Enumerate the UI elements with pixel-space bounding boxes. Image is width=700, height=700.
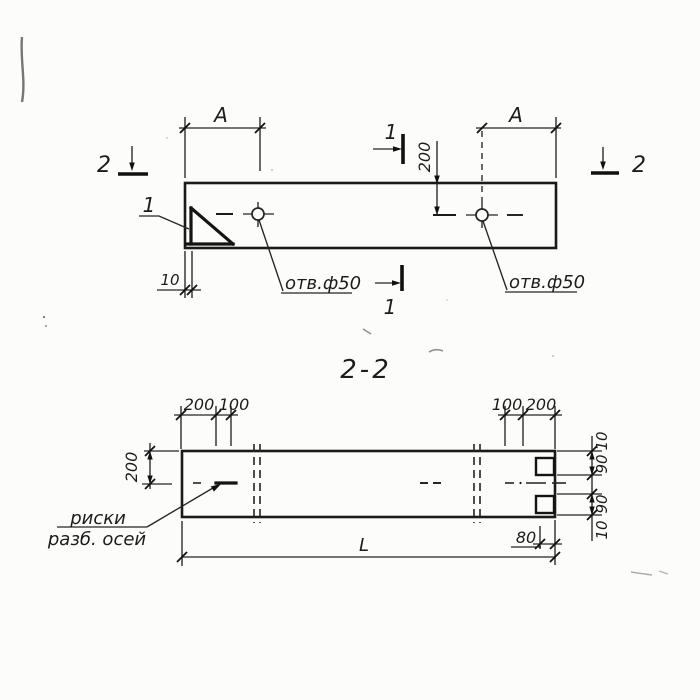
section-mark-2-right: 2: [591, 147, 646, 178]
section-mark-1-bottom: 1: [375, 265, 402, 319]
dim-200-plan-label: 200: [415, 142, 434, 173]
dim-top-right-100: 100: [492, 395, 523, 414]
axis-note-line2: разб. осей: [47, 529, 147, 550]
dim-top-left: 200 100: [174, 395, 249, 449]
dim-right-10-top: 10: [593, 431, 611, 450]
dim-right-chain: 10 90 90 10: [557, 431, 611, 541]
section-mark-1-bottom-label: 1: [384, 295, 397, 319]
dim-top-left-100: 100: [219, 395, 250, 414]
section-mark-1-top: 1: [373, 120, 403, 164]
section-title: 2-2: [340, 355, 391, 385]
dim-height-left-label: 200: [122, 452, 141, 483]
dim-a-right-label: А: [507, 103, 523, 127]
section-mark-1-top-label: 1: [385, 120, 398, 144]
dim-right-90-top: 90: [593, 454, 611, 473]
section-mark-2-left-label: 2: [97, 153, 111, 178]
dim-right-90-bottom: 90: [593, 494, 611, 513]
dim-top-left-200: 200: [184, 395, 215, 414]
dim-right-10-bottom: 10: [593, 520, 611, 539]
drawing-canvas: 1 отв.ф50 отв.ф50: [0, 0, 700, 700]
detail-mark-label: 1: [143, 193, 156, 217]
plan-view: 1 отв.ф50 отв.ф50: [97, 103, 646, 319]
dim-a-left-label: А: [212, 103, 228, 127]
dim-length-l: L: [177, 521, 560, 566]
section-mark-2-left: 2: [97, 146, 148, 178]
section-beam-outline: [182, 451, 555, 517]
axis-note-line1: риски: [69, 508, 126, 529]
dim-length-l-label: L: [359, 535, 369, 556]
detail-mark-1: 1: [139, 193, 189, 229]
plan-beam-outline: [185, 183, 556, 248]
dim-a-left: А: [179, 103, 266, 178]
hole-callout-left-label: отв.ф50: [285, 273, 361, 294]
drawing-sheet: 1 отв.ф50 отв.ф50: [0, 0, 700, 700]
dim-10-plan-label: 10: [160, 271, 179, 289]
dim-notch-80-label: 80: [516, 528, 536, 547]
section-mark-2-right-label: 2: [632, 153, 646, 178]
hole-callout-right-label: отв.ф50: [509, 272, 585, 293]
section-view: 200 100 100 200 200: [47, 395, 611, 566]
dim-10-plan: 10: [157, 251, 201, 298]
dim-height-left: 200: [122, 443, 179, 489]
dim-top-right-200: 200: [526, 395, 557, 414]
dim-top-right: 100 200: [492, 395, 562, 449]
